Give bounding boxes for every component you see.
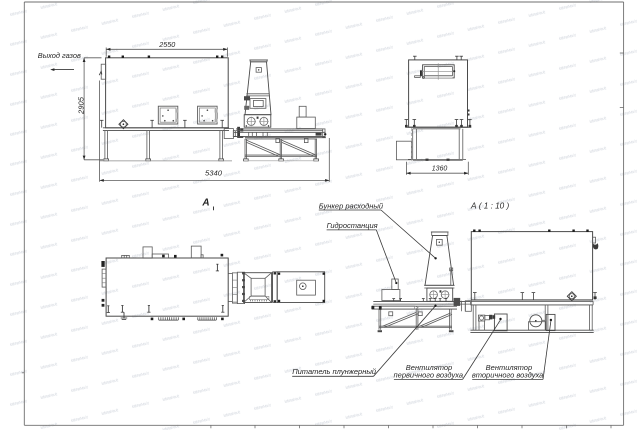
svg-text:А: А (201, 198, 209, 209)
svg-text:первичного воздуха: первичного воздуха (394, 371, 464, 380)
svg-text:2905: 2905 (76, 96, 85, 115)
svg-text:Питатель плунжерный: Питатель плунжерный (292, 367, 377, 376)
svg-text:вторичного воздуха: вторичного воздуха (472, 371, 543, 380)
svg-text:Выход газов: Выход газов (38, 51, 81, 60)
svg-text:1360: 1360 (432, 165, 448, 172)
svg-text:2550: 2550 (158, 40, 175, 49)
svg-text:5340: 5340 (205, 168, 223, 177)
svg-text:Гидростанция: Гидростанция (327, 221, 378, 230)
svg-text:Бункер расходный: Бункер расходный (319, 201, 384, 210)
svg-text:А ( 1 : 10 ): А ( 1 : 10 ) (470, 201, 509, 210)
